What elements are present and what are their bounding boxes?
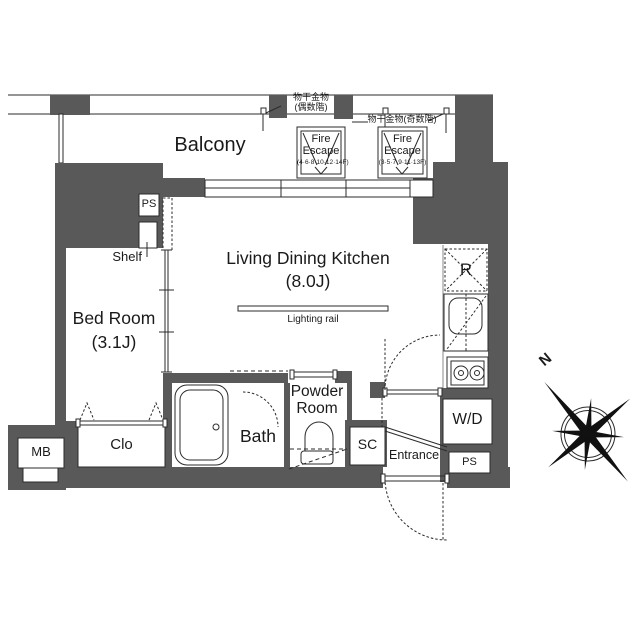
floor-plan: Balcony 物干金物 (偶数階) 物干金物(奇数階) Fire Escape… (0, 0, 640, 640)
shoe-closet-label: SC (350, 437, 385, 452)
washer-dryer-label: W/D (443, 411, 492, 428)
band-pillar (50, 95, 90, 115)
bathtub (175, 385, 228, 465)
bath-label: Bath (226, 427, 290, 446)
entrance-label: Entrance (383, 449, 445, 463)
fire-escape-right-label: Fire Escape (3·5·7·9·11·13F) (378, 133, 427, 166)
shelf-box (139, 222, 157, 248)
laundry-hardware-even-label: 物干金物 (偶数階) (283, 93, 339, 113)
partition-screen (163, 198, 172, 250)
hall-door (382, 335, 442, 427)
stove (447, 357, 488, 388)
ldk-label: Living Dining Kitchen (8.0J) (188, 247, 428, 293)
fire-escape-left-label: Fire Escape (4·6·8·10·12·14F) (297, 133, 345, 166)
bedroom-label: Bed Room (3.1J) (44, 306, 184, 354)
shelf-label: Shelf (98, 250, 142, 264)
right-wall (488, 244, 508, 482)
balcony-label: Balcony (150, 134, 270, 156)
compass-rose (504, 347, 640, 515)
bottom-wall (66, 467, 383, 488)
balcony-side-partition (59, 114, 63, 163)
toilet (289, 422, 347, 469)
powder-room-label: Powder Room (279, 383, 355, 417)
pipe-space-bottom-label: PS (449, 456, 490, 468)
closet-label: Clo (78, 437, 165, 454)
balcony-right-wall (455, 95, 493, 162)
refrigerator-label: R (445, 261, 487, 279)
lighting-rail-bar (238, 306, 388, 311)
pipe-space-top-label: PS (139, 198, 159, 210)
bath-door-swing (243, 392, 278, 427)
bath-top-wall (163, 373, 288, 383)
meter-box-label: MB (18, 445, 64, 459)
laundry-hardware-odd-label: 物干金物(奇数階) (352, 115, 452, 125)
entrance-door (381, 474, 449, 540)
closet-doors (76, 403, 167, 427)
lighting-rail-label: Lighting rail (263, 314, 363, 325)
balcony-window (205, 180, 433, 197)
meter-box-notch (23, 468, 58, 482)
